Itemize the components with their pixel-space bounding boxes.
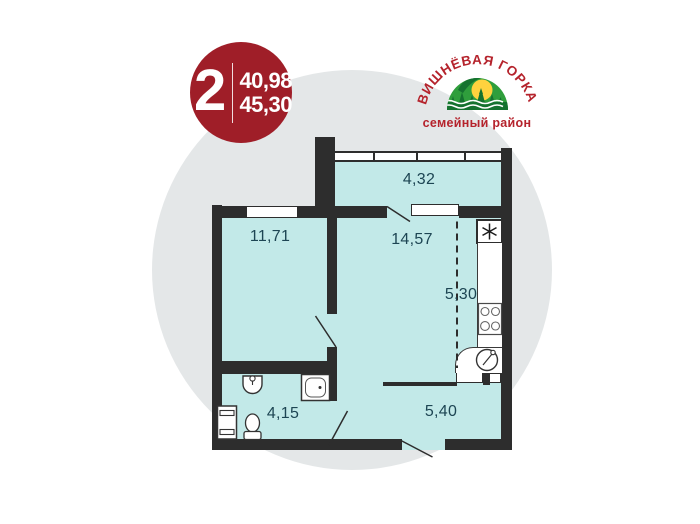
bathroom-area-label: 4,15	[267, 405, 299, 423]
room-count: 2	[194, 57, 226, 124]
area-total: 40,98	[239, 69, 292, 93]
ventilation-shaft-icon	[483, 224, 497, 240]
unit-badge: 2 40,98 45,30	[190, 42, 292, 143]
balcony-door-swing	[387, 207, 410, 222]
logo-tagline: семейный район	[423, 116, 532, 130]
stove-icon	[479, 304, 502, 335]
area-with-balcony: 45,30	[239, 93, 292, 117]
kitchen-living-area-label: 14,57	[391, 231, 433, 249]
bath-icon	[302, 375, 330, 401]
floorplan-canvas: 2 40,98 45,30	[0, 0, 700, 524]
balcony-area-label: 4,32	[403, 171, 435, 189]
plan-fixtures-overlay	[0, 0, 700, 524]
kitchen-sink-icon	[477, 350, 498, 371]
badge-areas: 40,98 45,30	[239, 69, 292, 117]
room-door-swing	[316, 316, 337, 347]
toilet-icon	[244, 414, 261, 440]
hallway-area-label: 5,40	[425, 403, 457, 421]
kitchen-area-label: 5,30	[445, 286, 477, 304]
entrance-door-swing	[401, 441, 433, 458]
developer-logo: ВИШНЁВАЯ ГОРКА семейный район	[413, 50, 558, 135]
washbasin-icon	[243, 376, 262, 394]
bathroom-door-swing	[329, 411, 348, 445]
room-area-label: 11,71	[250, 228, 290, 246]
washing-machine-icon	[218, 406, 237, 439]
